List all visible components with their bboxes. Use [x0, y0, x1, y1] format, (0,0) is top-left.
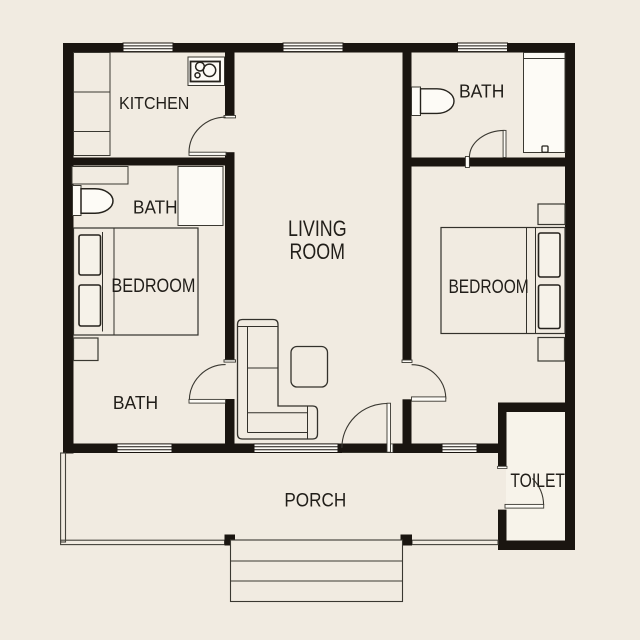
svg-text:TOILET: TOILET: [510, 471, 565, 492]
svg-text:BATH: BATH: [459, 82, 504, 102]
svg-text:ROOM: ROOM: [290, 239, 346, 264]
svg-text:LIVING: LIVING: [288, 216, 347, 241]
svg-text:PORCH: PORCH: [284, 490, 346, 512]
svg-text:BEDROOM: BEDROOM: [111, 276, 195, 297]
svg-text:BATH: BATH: [113, 393, 158, 413]
svg-text:BATH: BATH: [133, 198, 178, 218]
svg-text:KITCHEN: KITCHEN: [119, 93, 189, 113]
svg-text:BEDROOM: BEDROOM: [448, 277, 528, 298]
